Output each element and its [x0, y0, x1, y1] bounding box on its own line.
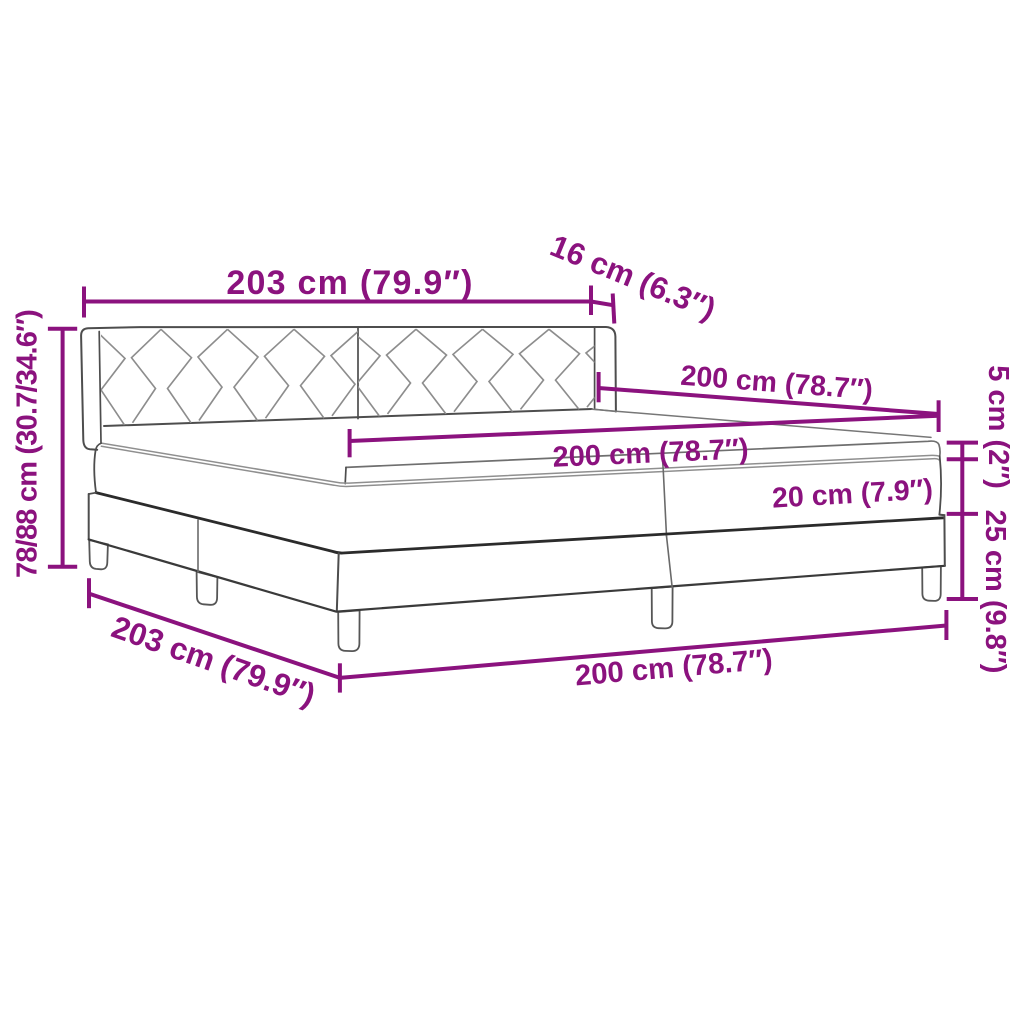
svg-text:200 cm (78.7″): 200 cm (78.7″) — [574, 643, 774, 693]
svg-text:25 cm (9.8″): 25 cm (9.8″) — [979, 510, 1011, 674]
svg-text:200 cm (78.7″): 200 cm (78.7″) — [552, 433, 749, 474]
svg-text:203 cm (79.9″): 203 cm (79.9″) — [226, 264, 473, 302]
svg-text:16 cm (6.3″): 16 cm (6.3″) — [545, 228, 720, 327]
svg-text:5 cm (2″): 5 cm (2″) — [982, 365, 1014, 489]
svg-text:200 cm (78.7″): 200 cm (78.7″) — [679, 360, 874, 407]
svg-text:20 cm (7.9″): 20 cm (7.9″) — [771, 473, 934, 514]
svg-text:78/88 cm (30.7/34.6″): 78/88 cm (30.7/34.6″) — [12, 310, 44, 578]
